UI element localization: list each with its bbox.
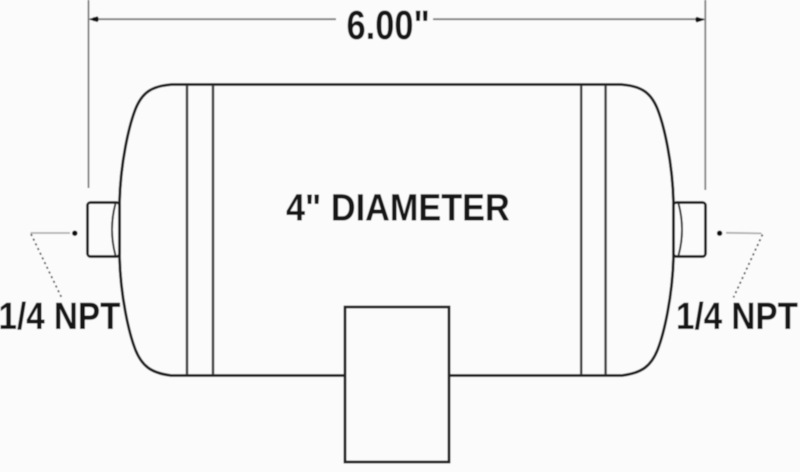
svg-text:1/4 NPT: 1/4 NPT	[676, 295, 798, 338]
svg-text:6.00": 6.00"	[347, 3, 430, 48]
svg-text:4" DIAMETER: 4" DIAMETER	[286, 186, 510, 229]
svg-text:1/4 NPT: 1/4 NPT	[0, 295, 121, 338]
